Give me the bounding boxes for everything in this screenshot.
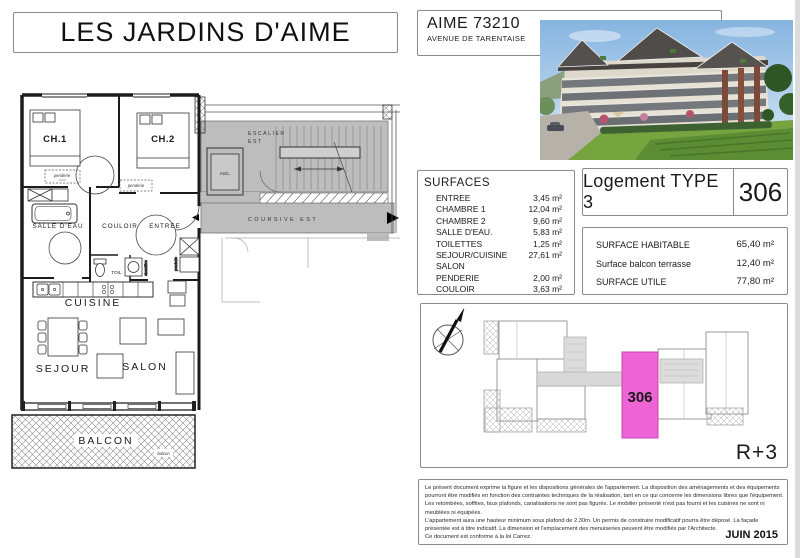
surface-row: PENDERIE2,00 m² — [424, 273, 562, 284]
room-label-salon: SALON — [122, 361, 168, 373]
walkway-label: COURSIVE EST — [248, 217, 318, 223]
elevator: ASC. — [207, 148, 243, 195]
svg-text:penderie: penderie — [53, 173, 71, 178]
surface-row: TOILETTES1,25 m² — [424, 239, 562, 250]
neighbor-unit-outline — [222, 238, 400, 302]
legal-line: Les retombées, soffites, faux plafonds, … — [425, 500, 781, 508]
room-label-salle-deau: SALLE D'EAU — [32, 223, 83, 230]
surfaces-heading: SURFACES — [424, 177, 562, 189]
dining-table — [38, 318, 87, 356]
elevator-label: ASC. — [220, 171, 231, 176]
wardrobe-ch2: penderie — [120, 180, 152, 191]
room-label-balcon: BALCON — [78, 435, 133, 447]
bathroom-fixtures — [28, 189, 77, 223]
floor-plan: ASC. ESCALIER EST COURSIVE EST — [8, 80, 410, 480]
room-label-sejour: SEJOUR — [36, 363, 91, 375]
entry-arrow — [192, 214, 199, 221]
surface-row: SALON — [424, 261, 562, 272]
legal-notice: Le présent document exprime la figure et… — [418, 479, 788, 545]
room-label-ch1: CH.1 — [43, 134, 67, 145]
stair-label-line2: EST — [248, 139, 263, 145]
keyplan-unit-number: 306 — [627, 389, 652, 406]
svg-text:penderie: penderie — [174, 257, 178, 271]
room-label-entree: ENTREE — [149, 223, 181, 230]
balcony-glazing — [21, 401, 196, 411]
surface-row: CHAMBRE 112,04 m² — [424, 204, 562, 215]
boiler: chaudière — [125, 258, 148, 276]
stair-handrail — [280, 147, 360, 158]
toilet — [94, 259, 106, 277]
entry-closet: penderie — [174, 238, 199, 272]
total-row: SURFACE HABITABLE65,40 m² — [596, 236, 774, 255]
legal-line: pourront être modifiés en fonction des c… — [425, 492, 781, 500]
surface-row: COULOIR3,63 m² — [424, 284, 562, 295]
key-plan-box: 306 R+3 — [420, 303, 788, 468]
svg-text:chaudière: chaudière — [144, 260, 148, 276]
scan-edge — [795, 0, 800, 558]
balcony: BALCON balcon — [12, 415, 195, 468]
surfaces-panel: SURFACES ENTREE3,45 m² CHAMBRE 112,04 m²… — [417, 170, 575, 295]
svg-text:penderie: penderie — [127, 183, 145, 188]
room-label-couloir: COULOIR — [102, 223, 138, 230]
highlighted-unit: 306 — [622, 352, 658, 438]
key-plan: 306 R+3 — [421, 304, 787, 467]
total-row: Surface balcon terrasse12,40 m² — [596, 255, 774, 274]
unit-type-box: Logement TYPE 3 306 — [582, 168, 788, 216]
project-title-box: LES JARDINS D'AIME — [13, 12, 398, 53]
legal-line: meublées ni équipées. — [425, 509, 781, 517]
balcony-small-label: balcon — [157, 451, 170, 456]
room-label-cuisine: CUISINE — [65, 297, 122, 309]
compass-icon — [433, 309, 464, 355]
unit-number: 306 — [733, 169, 787, 215]
document-date: JUIN 2015 — [725, 529, 778, 541]
unit-type-label: Logement TYPE 3 — [583, 169, 733, 215]
living-room-furniture — [97, 318, 194, 394]
legal-line: L'appartement aura une hauteur minimum s… — [425, 517, 781, 525]
totals-panel: SURFACE HABITABLE65,40 m² Surface balcon… — [582, 227, 788, 295]
common-circulation: ASC. ESCALIER EST COURSIVE EST — [192, 97, 400, 241]
floor-level-label: R+3 — [736, 441, 778, 464]
building-photo — [540, 20, 793, 160]
stair-label-line1: ESCALIER — [248, 131, 286, 137]
room-label-ch2: CH.2 — [151, 134, 175, 145]
legal-line: Le présent document exprime la figure et… — [425, 484, 781, 492]
surface-row: SALLE D'EAU.5,83 m² — [424, 227, 562, 238]
surface-row: ENTREE3,45 m² — [424, 193, 562, 204]
room-label-toilettes: TOIL. — [111, 270, 122, 275]
surface-row: CHAMBRE 29,60 m² — [424, 216, 562, 227]
project-title: LES JARDINS D'AIME — [60, 17, 350, 48]
surface-row: SEJOUR/CUISINE27,61 m² — [424, 250, 562, 261]
total-row: SURFACE UTILE77,80 m² — [596, 273, 774, 292]
wardrobe-ch1: penderie — [45, 170, 80, 183]
